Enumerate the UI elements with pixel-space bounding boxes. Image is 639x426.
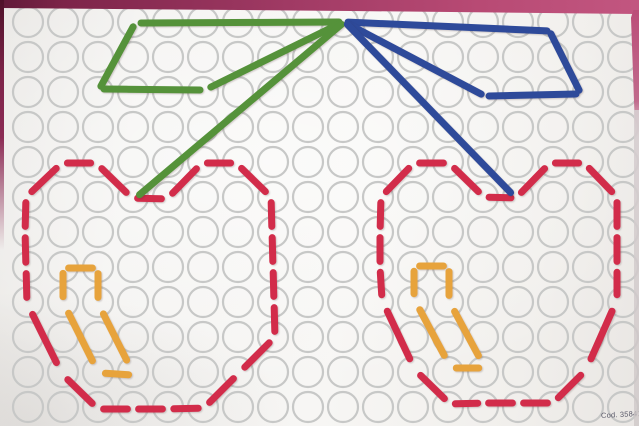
hole bbox=[363, 147, 393, 177]
hole bbox=[293, 357, 323, 387]
hole bbox=[363, 392, 393, 422]
hole bbox=[328, 287, 358, 317]
right-cherry-outline-stick bbox=[387, 311, 409, 359]
hole bbox=[468, 252, 498, 282]
left-cherry-outline-stick bbox=[25, 238, 26, 262]
hole bbox=[503, 217, 533, 247]
hole bbox=[223, 322, 253, 352]
hole bbox=[293, 287, 323, 317]
hole bbox=[258, 357, 288, 387]
hole bbox=[293, 77, 323, 107]
hole bbox=[223, 287, 253, 317]
hole bbox=[188, 252, 218, 282]
hole bbox=[538, 217, 568, 247]
hole bbox=[13, 392, 43, 422]
left-cherry-highlight-stick bbox=[105, 373, 128, 374]
hole bbox=[153, 322, 183, 352]
hole bbox=[468, 217, 498, 247]
hole bbox=[293, 147, 323, 177]
right-leaf-stick bbox=[348, 24, 481, 94]
hole bbox=[48, 42, 78, 72]
hole bbox=[503, 42, 533, 72]
hole bbox=[188, 42, 218, 72]
hole bbox=[363, 322, 393, 352]
hole bbox=[48, 7, 78, 37]
hole bbox=[573, 217, 603, 247]
right-cherry-outline-stick bbox=[380, 272, 381, 294]
hole bbox=[48, 182, 78, 212]
hole bbox=[188, 217, 218, 247]
left-cherry-outline-stick bbox=[174, 408, 198, 409]
left-leaf-stick bbox=[141, 22, 339, 23]
hole bbox=[118, 217, 148, 247]
hole bbox=[468, 112, 498, 142]
hole bbox=[13, 7, 43, 37]
left-cherry-outline-stick bbox=[274, 308, 275, 332]
right-cherry-outline-stick bbox=[455, 403, 477, 404]
right-stem bbox=[347, 24, 510, 192]
card-edge-right bbox=[634, 110, 639, 426]
hole bbox=[503, 392, 533, 422]
maroon-border-left bbox=[0, 0, 4, 250]
hole bbox=[153, 217, 183, 247]
hole bbox=[468, 42, 498, 72]
hole bbox=[13, 147, 43, 177]
hole bbox=[48, 112, 78, 142]
hole bbox=[468, 287, 498, 317]
left-cherry-outline-stick bbox=[271, 203, 272, 227]
left-cherry-highlight-stick bbox=[103, 314, 126, 360]
left-leaf-stick bbox=[104, 89, 200, 90]
right-cherry-outline-stick bbox=[455, 168, 479, 191]
pegboard bbox=[0, 0, 639, 426]
hole bbox=[83, 112, 113, 142]
hole bbox=[503, 287, 533, 317]
hole bbox=[468, 392, 498, 422]
hole bbox=[223, 182, 253, 212]
left-cherry-outline-stick bbox=[173, 169, 197, 193]
hole bbox=[293, 252, 323, 282]
hole bbox=[258, 392, 288, 422]
hole bbox=[503, 357, 533, 387]
hole bbox=[573, 287, 603, 317]
hole bbox=[293, 217, 323, 247]
right-cherry-outline-stick bbox=[380, 203, 381, 227]
hole bbox=[538, 112, 568, 142]
hole bbox=[328, 42, 358, 72]
hole bbox=[503, 112, 533, 142]
hole bbox=[118, 287, 148, 317]
hole bbox=[503, 147, 533, 177]
hole bbox=[48, 217, 78, 247]
hole bbox=[433, 357, 463, 387]
hole bbox=[328, 322, 358, 352]
hole bbox=[13, 112, 43, 142]
left-cherry-outline-stick bbox=[25, 203, 26, 227]
left-cherry-outline-stick bbox=[32, 168, 56, 191]
hole bbox=[118, 252, 148, 282]
hole bbox=[398, 217, 428, 247]
hole bbox=[83, 182, 113, 212]
hole bbox=[573, 42, 603, 72]
left-cherry-highlight-stick bbox=[69, 313, 93, 361]
hole bbox=[83, 7, 113, 37]
hole bbox=[118, 112, 148, 142]
hole bbox=[503, 322, 533, 352]
hole bbox=[363, 357, 393, 387]
right-stem-stick bbox=[347, 24, 510, 192]
hole bbox=[398, 112, 428, 142]
right-leaf-stick bbox=[348, 22, 547, 31]
hole bbox=[293, 392, 323, 422]
hole bbox=[258, 147, 288, 177]
hole bbox=[328, 217, 358, 247]
hole bbox=[433, 217, 463, 247]
hole bbox=[573, 392, 603, 422]
hole bbox=[398, 182, 428, 212]
hole bbox=[223, 217, 253, 247]
hole bbox=[328, 357, 358, 387]
hole bbox=[363, 112, 393, 142]
hole bbox=[153, 287, 183, 317]
right-cherry-outline-stick bbox=[421, 375, 445, 398]
hole bbox=[153, 252, 183, 282]
hole bbox=[538, 287, 568, 317]
hole bbox=[188, 357, 218, 387]
hole bbox=[328, 147, 358, 177]
hole bbox=[188, 287, 218, 317]
hole bbox=[573, 182, 603, 212]
hole bbox=[468, 357, 498, 387]
hole bbox=[573, 252, 603, 282]
left-cherry-outline-stick bbox=[33, 314, 57, 362]
hole bbox=[293, 182, 323, 212]
hole bbox=[48, 77, 78, 107]
hole bbox=[503, 252, 533, 282]
right-leaf-stick bbox=[489, 94, 576, 96]
hole bbox=[223, 392, 253, 422]
hole bbox=[188, 322, 218, 352]
hole bbox=[13, 77, 43, 107]
hole bbox=[398, 392, 428, 422]
hole bbox=[258, 112, 288, 142]
hole bbox=[328, 252, 358, 282]
hole bbox=[433, 182, 463, 212]
hole bbox=[153, 42, 183, 72]
hole bbox=[328, 392, 358, 422]
hole bbox=[328, 77, 358, 107]
hole bbox=[118, 147, 148, 177]
hole bbox=[538, 357, 568, 387]
right-cherry-outline-stick bbox=[489, 197, 511, 198]
left-cherry-outline-stick bbox=[26, 274, 27, 298]
hole bbox=[48, 392, 78, 422]
hole bbox=[188, 182, 218, 212]
hole bbox=[293, 322, 323, 352]
hole bbox=[538, 322, 568, 352]
hole bbox=[13, 42, 43, 72]
hole bbox=[153, 112, 183, 142]
hole bbox=[363, 77, 393, 107]
hole bbox=[538, 182, 568, 212]
lacing-card-photo: Cod. 35841 bbox=[0, 0, 639, 426]
hole bbox=[328, 112, 358, 142]
hole bbox=[83, 217, 113, 247]
hole bbox=[223, 252, 253, 282]
hole bbox=[153, 357, 183, 387]
left-cherry-outline-stick bbox=[138, 198, 162, 199]
hole bbox=[328, 182, 358, 212]
left-cherry-outline-stick bbox=[272, 238, 273, 262]
left-cherry-outline-stick bbox=[273, 273, 274, 297]
right-cherry-outline-stick bbox=[558, 375, 580, 397]
hole bbox=[538, 252, 568, 282]
hole bbox=[573, 112, 603, 142]
hole bbox=[293, 112, 323, 142]
hole bbox=[13, 357, 43, 387]
